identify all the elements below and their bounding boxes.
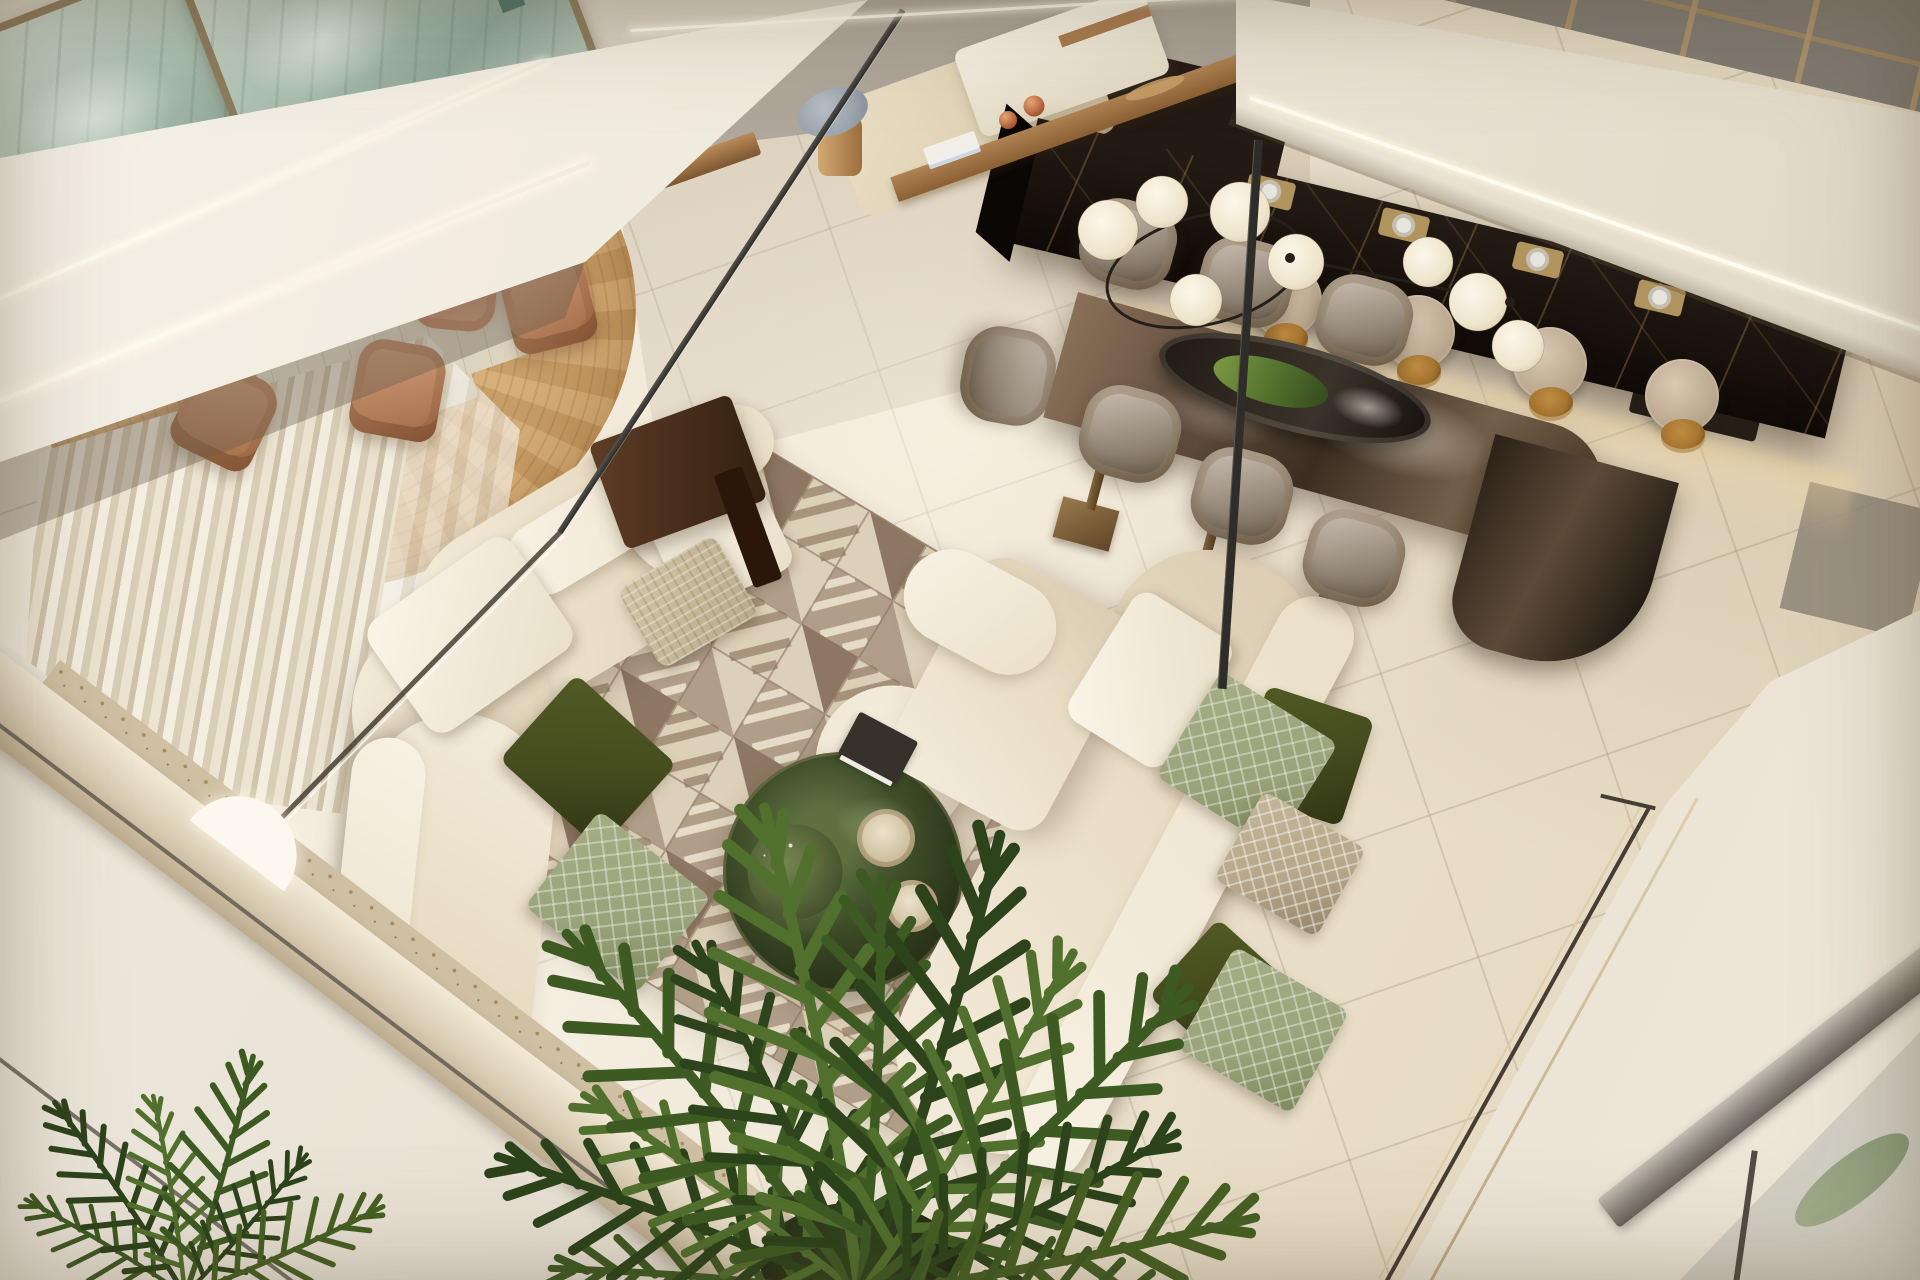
copper-cup — [1024, 96, 1045, 117]
copper-cup — [999, 111, 1017, 129]
palm-plant — [200, 630, 1520, 1280]
palm-cluster-main — [468, 787, 1273, 1280]
interior-render — [0, 0, 1920, 1280]
boucle-bar-stool — [1645, 359, 1719, 433]
